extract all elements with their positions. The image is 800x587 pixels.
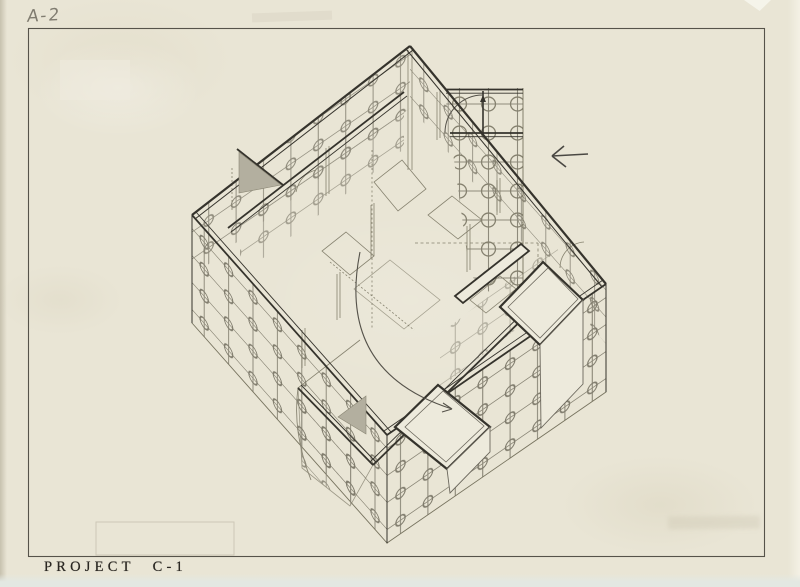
caption-drawing-code: C-1 — [153, 559, 187, 575]
caption-project-label: PROJECT — [44, 559, 135, 575]
scan-background-strip — [0, 574, 800, 587]
axonometric-drawing — [0, 0, 800, 587]
scanned-drawing-sheet: A-2 — [0, 0, 800, 587]
paper-left-shadow — [0, 0, 7, 587]
faded-stamp-smudge — [668, 516, 760, 530]
direction-arrow-icon — [552, 146, 588, 167]
paper-right-edge — [788, 0, 800, 587]
